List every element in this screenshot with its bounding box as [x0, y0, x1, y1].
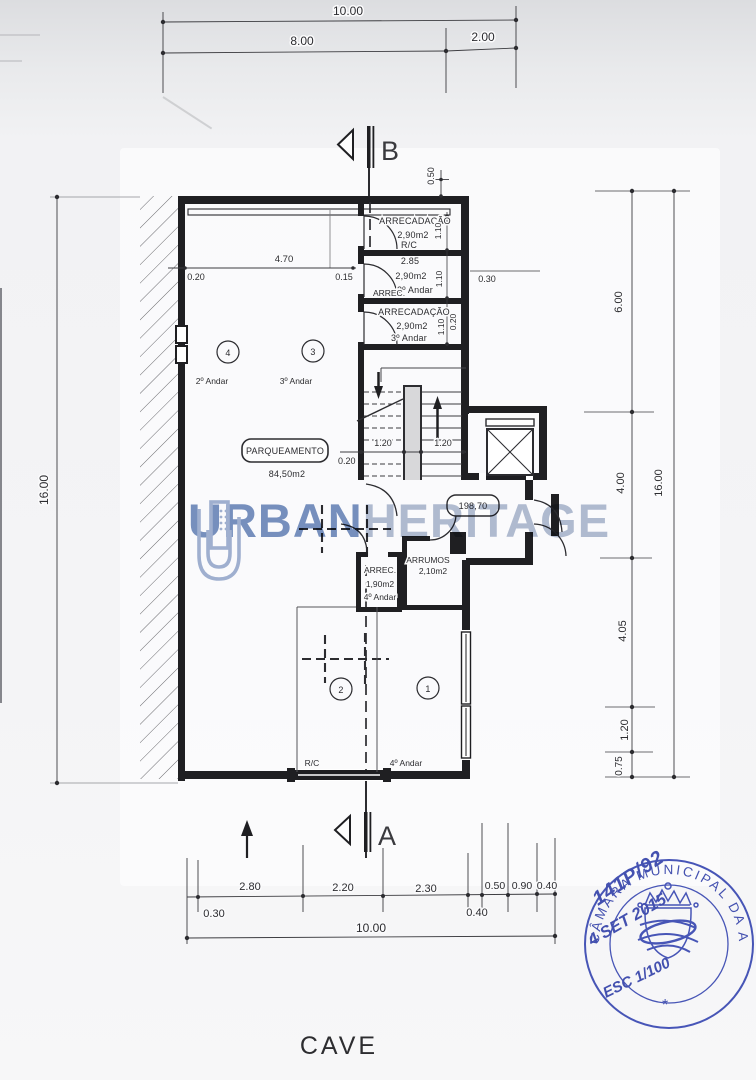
dim-garage-width: 4.70 — [275, 254, 294, 265]
dim-left-total: 16.00 — [37, 475, 51, 505]
dimension-right — [584, 189, 690, 779]
room-storage-2-area: 2,90m2 — [395, 271, 426, 281]
dim-right-075: 0.75 — [614, 756, 625, 776]
dim-stair-right: 1.20 — [434, 438, 452, 448]
elevator — [486, 419, 534, 475]
stair-stringer — [404, 386, 421, 480]
room-storage-3-area: 2,90m2 — [396, 321, 427, 331]
room-storage-3-name: ARRECADAÇÃO — [378, 307, 450, 317]
right-wall-windows — [461, 630, 471, 760]
dim-bottom-220: 2.20 — [332, 882, 353, 894]
section-trace — [366, 202, 370, 770]
dim-stair-side: 0.20 — [338, 456, 356, 466]
dim-storage-3-depth: 1.10 — [436, 318, 446, 335]
dim-storage-rc-depth: 1.10 — [433, 222, 443, 239]
room-arrumos-area: 2,10m2 — [419, 566, 448, 576]
dimension-top — [161, 6, 518, 93]
storage-doors — [364, 216, 397, 345]
space-1: 1 — [425, 684, 430, 694]
level-value: 198,70 — [459, 501, 488, 511]
dim-right-4: 4.00 — [615, 472, 627, 493]
space-3-floor: 3º Andar — [280, 376, 313, 386]
stamp-authority: CÂMARA MUNICIPAL DA AMADORA — [0, 0, 751, 944]
room-storage-rc-floor: R/C — [401, 240, 417, 250]
dim-wall-gap: 0.15 — [335, 272, 353, 282]
elevator-door — [486, 419, 534, 426]
space-3: 3 — [310, 347, 315, 357]
dim-bottom-230: 2.30 — [415, 883, 436, 895]
municipal-stamp: CÂMARA MUNICIPAL DA AMADORA 141P/92 4 SE… — [0, 0, 753, 1028]
garage-door — [287, 768, 391, 782]
dim-right-6: 6.00 — [613, 291, 625, 312]
section-marker-b: B — [338, 126, 399, 198]
dim-stair-left: 1.20 — [374, 438, 392, 448]
dim-right-total: 16.00 — [653, 469, 665, 497]
parking-lines — [297, 210, 377, 772]
stamp-crest-icon — [638, 883, 698, 958]
walls — [178, 196, 559, 781]
section-letter-b: B — [381, 136, 399, 166]
space-2-floor: R/C — [305, 758, 320, 768]
parking-name: PARQUEAMENTO — [246, 446, 324, 456]
section-letter-a: A — [378, 821, 396, 851]
section-arrow-icon — [338, 130, 353, 159]
entrance-arrow-icon — [241, 820, 253, 858]
section-arrow-icon — [335, 816, 350, 844]
stamp-scale: ESC 1/100 — [600, 954, 673, 1001]
scanned-floor-plan-page: 10.00 8.00 2.00 B — [0, 0, 756, 1080]
floor-plan-drawing: 10.00 8.00 2.00 B — [0, 0, 756, 1080]
dim-top-total: 10.00 — [333, 4, 363, 18]
room-storage-2-name: ARREC. — [373, 288, 405, 298]
dim-right-405: 4.05 — [617, 620, 629, 641]
dim-bottom-090: 0.90 — [512, 880, 533, 892]
level-label: 198,70 — [447, 495, 499, 516]
section-marker-a: A — [335, 781, 396, 858]
dim-bottom-050: 0.50 — [485, 880, 506, 892]
dim-storage-2-depth: 1.10 — [434, 270, 444, 287]
dim-bottom-offl: 0.30 — [203, 908, 224, 920]
space-2: 2 — [338, 685, 343, 695]
dim-bottom-280: 2.80 — [239, 881, 260, 893]
dim-bottom-total: 10.00 — [356, 921, 386, 935]
room-arrec4-name: ARREC. — [364, 565, 396, 575]
dim-right-120: 1.20 — [619, 719, 631, 740]
stair-down-arrow-icon — [374, 372, 383, 399]
dim-left-offset: 0.20 — [187, 272, 205, 282]
stair-lobby-door — [366, 484, 397, 516]
dim-bottom-040: 0.40 — [537, 880, 558, 892]
parking-area-value: 84,50m2 — [269, 469, 305, 479]
parqueamento-label: PARQUEAMENTO — [242, 439, 328, 462]
space-1-floor: 4º Andar — [390, 758, 423, 768]
room-storage-rc-area: 2,90m2 — [397, 230, 428, 240]
dim-top-2: 2.00 — [471, 30, 495, 44]
small-rooms — [341, 524, 466, 612]
drawing-title: CAVE — [284, 1032, 394, 1061]
dim-parapet: 0.50 — [426, 167, 436, 185]
space-4-floor: 2º Andar — [196, 376, 229, 386]
svg-text:CÂMARA MUNICIPAL DA AMADORA: CÂMARA MUNICIPAL DA AMADORA — [0, 0, 751, 944]
stamp-mark: * — [662, 997, 668, 1014]
dim-storage-3-side: 0.20 — [448, 313, 458, 330]
space-4: 4 — [225, 348, 230, 358]
dim-bottom-offr: 0.40 — [466, 907, 487, 919]
dim-right-offset: 0.30 — [478, 274, 496, 284]
room-arrumos-name: ARRUMOS — [406, 555, 450, 565]
dim-top-8: 8.00 — [290, 34, 314, 48]
room-arrec4-area: 1,90m2 — [366, 579, 395, 589]
exterior-wall-hatch — [140, 196, 178, 779]
dim-storage-width: 2.85 — [401, 256, 419, 266]
room-storage-3-floor: 3º Andar — [391, 333, 427, 343]
room-arrec4-floor: 4º Andar — [364, 592, 397, 602]
